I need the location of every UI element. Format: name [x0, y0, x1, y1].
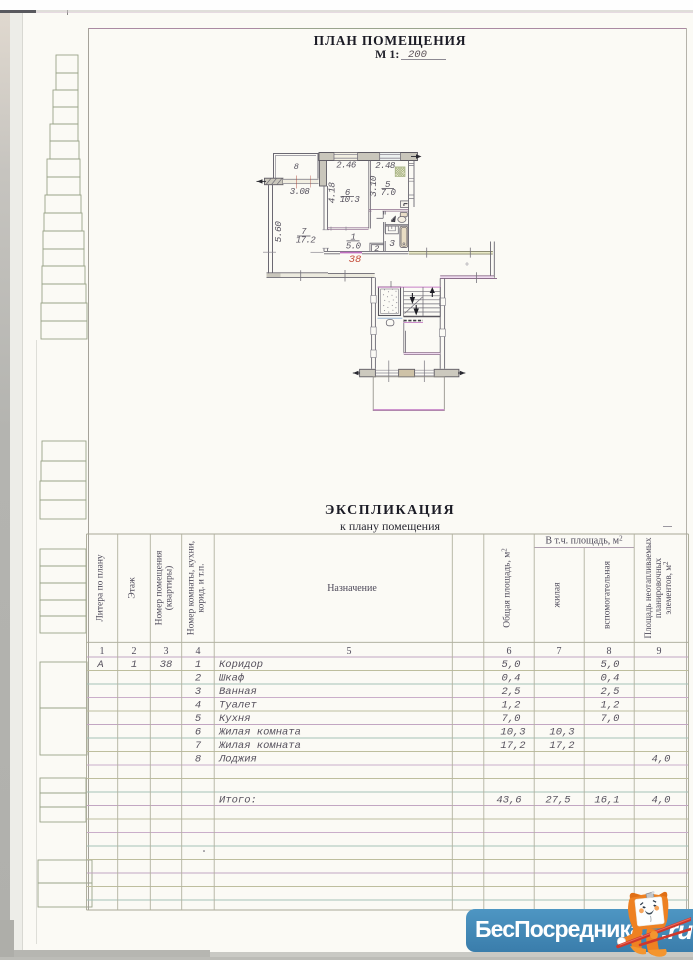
svg-text:8: 8 — [195, 754, 201, 766]
svg-text:А: А — [96, 659, 103, 671]
svg-text:8: 8 — [607, 646, 612, 657]
svg-text:Ванная: Ванная — [219, 686, 257, 698]
svg-text:3: 3 — [389, 238, 395, 249]
svg-text:(квартиры): (квартиры) — [164, 566, 175, 611]
svg-text:Шкаф: Шкаф — [218, 672, 245, 685]
svg-text:корид. и т.п.: корид. и т.п. — [197, 563, 207, 612]
svg-text:1: 1 — [195, 659, 201, 671]
svg-text:7,0: 7,0 — [601, 713, 620, 725]
svg-text:3: 3 — [195, 686, 201, 698]
svg-text:2: 2 — [195, 673, 201, 685]
svg-text:16,1: 16,1 — [594, 795, 619, 807]
svg-text:элементов, м2: элементов, м2 — [662, 561, 673, 614]
svg-text:17,2: 17,2 — [549, 740, 574, 752]
svg-text:Жилая комната: Жилая комната — [218, 727, 301, 739]
svg-text:0,4: 0,4 — [502, 673, 521, 685]
svg-text:Кухня: Кухня — [219, 713, 251, 725]
svg-text:4: 4 — [391, 215, 396, 225]
svg-text:Номер комнаты, кухни,: Номер комнаты, кухни, — [187, 541, 197, 635]
svg-text:Общая площадь, м2: Общая площадь, м2 — [501, 548, 513, 628]
svg-text:5.0: 5.0 — [346, 241, 362, 251]
svg-text:9: 9 — [657, 646, 662, 657]
svg-text:Номер помещения: Номер помещения — [155, 550, 165, 625]
svg-text:2,5: 2,5 — [601, 686, 621, 698]
svg-text:5: 5 — [195, 713, 202, 725]
svg-text:6: 6 — [507, 646, 512, 657]
svg-text:4,0: 4,0 — [652, 754, 671, 766]
svg-text:7: 7 — [195, 740, 202, 752]
svg-text:4,0: 4,0 — [652, 795, 671, 807]
svg-text:8: 8 — [294, 162, 299, 172]
svg-text:38: 38 — [349, 254, 362, 266]
svg-text:7.0: 7.0 — [381, 188, 397, 198]
svg-text:1: 1 — [131, 659, 137, 671]
svg-text:10,3: 10,3 — [549, 727, 574, 739]
svg-text:27,5: 27,5 — [545, 795, 571, 807]
svg-text:3: 3 — [164, 646, 169, 657]
svg-text:планировочных: планировочных — [653, 557, 663, 618]
svg-text:17,2: 17,2 — [500, 740, 525, 752]
svg-text:Итого:: Итого: — [219, 795, 257, 807]
svg-text:1,2: 1,2 — [601, 700, 620, 712]
svg-text:Этаж: Этаж — [128, 577, 138, 599]
svg-text:6: 6 — [195, 727, 201, 739]
svg-text:2: 2 — [132, 646, 137, 657]
svg-text:4.18: 4.18 — [327, 182, 338, 204]
svg-text:Площадь неотапливаемых: Площадь неотапливаемых — [643, 537, 653, 638]
svg-text:5.60: 5.60 — [273, 221, 284, 243]
svg-text:1: 1 — [100, 646, 105, 657]
svg-text:Лоджия: Лоджия — [218, 754, 257, 766]
svg-text:5: 5 — [347, 646, 352, 657]
svg-text:жилая: жилая — [553, 582, 563, 609]
svg-text:Туалет: Туалет — [219, 700, 258, 712]
svg-text:7: 7 — [557, 646, 562, 657]
svg-text:3.10: 3.10 — [368, 175, 379, 197]
svg-text:Назначение: Назначение — [327, 583, 377, 594]
svg-text:1,2: 1,2 — [502, 700, 521, 712]
svg-text:0,4: 0,4 — [601, 673, 620, 685]
svg-text:2: 2 — [374, 244, 379, 254]
svg-text:вспомогательная: вспомогательная — [603, 560, 613, 629]
svg-text:5,0: 5,0 — [502, 659, 521, 671]
svg-text:3.08: 3.08 — [290, 187, 311, 197]
svg-text:2.46: 2.46 — [336, 161, 357, 171]
svg-text:17.2: 17.2 — [296, 236, 317, 246]
svg-text:7,0: 7,0 — [502, 713, 521, 725]
svg-text:5,0: 5,0 — [601, 659, 620, 671]
svg-text:10,3: 10,3 — [500, 727, 525, 739]
svg-text:В т.ч. площадь, м2: В т.ч. площадь, м2 — [545, 535, 623, 547]
svg-text:2,5: 2,5 — [502, 686, 522, 698]
svg-text:Коридор: Коридор — [219, 659, 263, 671]
svg-text:2.48: 2.48 — [375, 161, 396, 171]
svg-text:Жилая комната: Жилая комната — [218, 740, 301, 752]
svg-text:Литера по плану: Литера по плану — [96, 554, 106, 622]
svg-text:38: 38 — [160, 659, 173, 671]
svg-text:4: 4 — [196, 646, 201, 657]
svg-text:4: 4 — [195, 700, 201, 712]
svg-text:43,6: 43,6 — [496, 795, 521, 807]
